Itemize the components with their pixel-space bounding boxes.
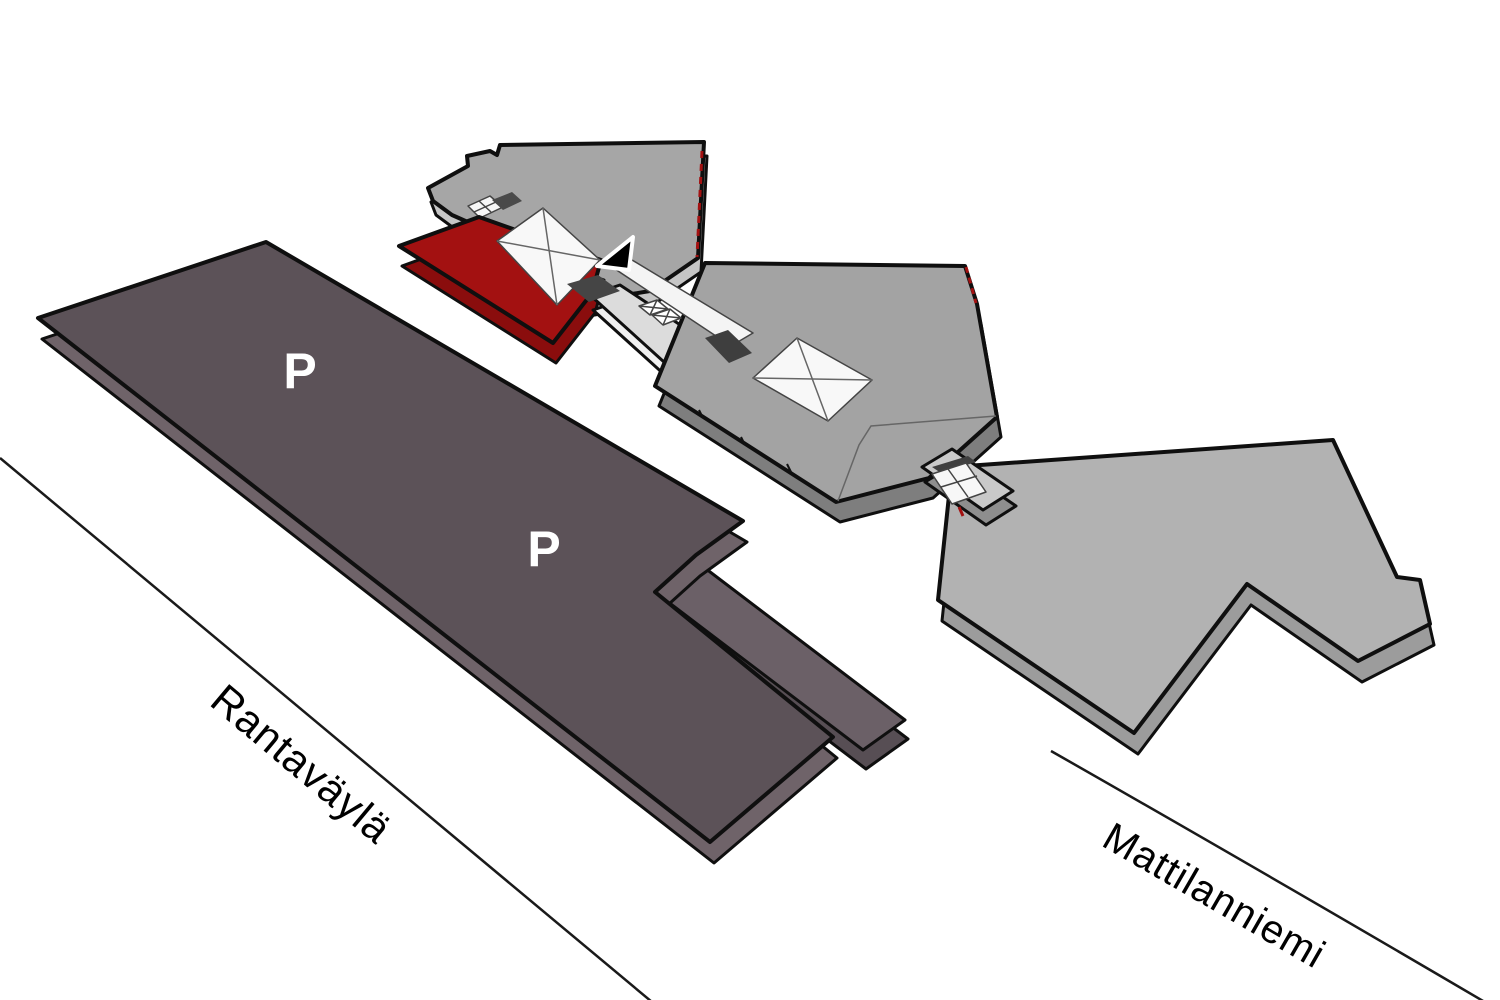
campus-map: Rantaväylä Mattilanniemi (0, 0, 1500, 1000)
road-label-rantavayla: Rantaväylä (202, 675, 401, 852)
parking-label-2: P (527, 521, 560, 577)
campus-map-canvas: Rantaväylä Mattilanniemi (0, 0, 1500, 1000)
building-east (938, 440, 1434, 754)
road-line-right (1051, 751, 1495, 1000)
parking-label-1: P (283, 343, 316, 399)
corridor-link-east (922, 449, 1016, 525)
district-label-mattilanniemi: Mattilanniemi (1096, 815, 1333, 977)
